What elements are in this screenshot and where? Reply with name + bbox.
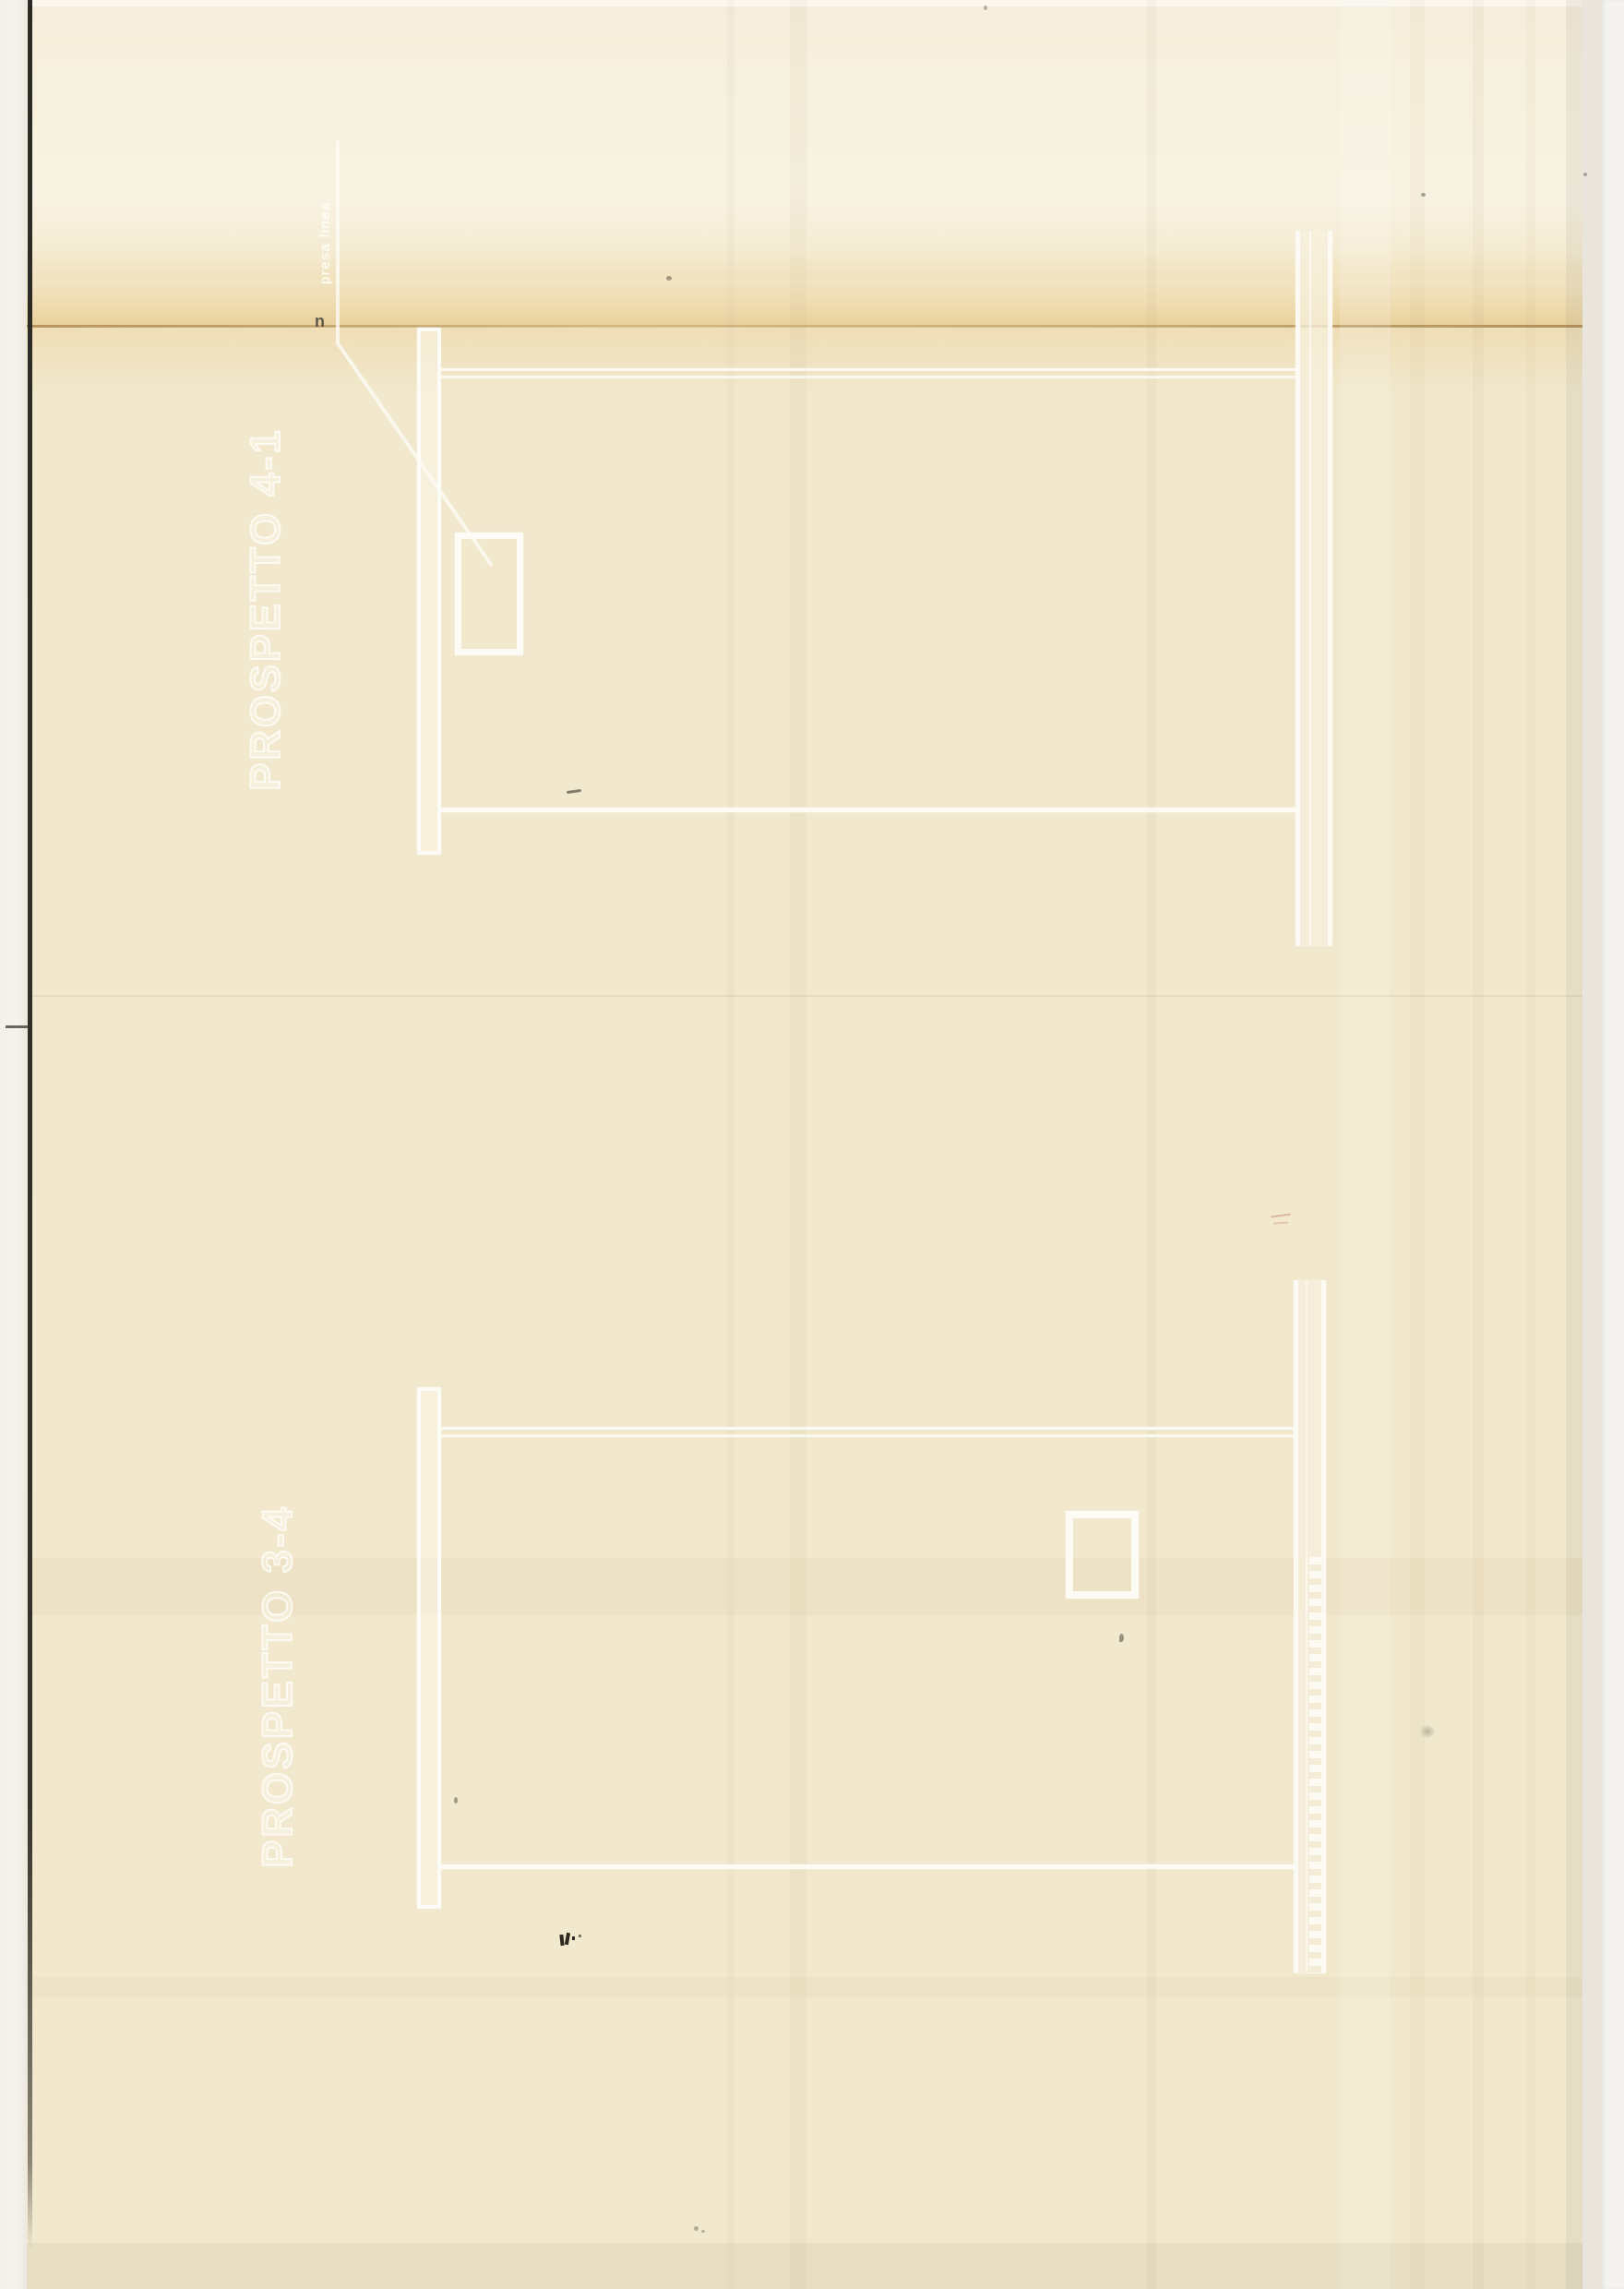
- paper-speck: [666, 276, 672, 281]
- left-pillar: [417, 1387, 441, 1909]
- right-pillar: [1296, 231, 1332, 946]
- annotation-n-mark: n: [315, 312, 325, 331]
- vertical-crease: [1410, 0, 1425, 2289]
- ink-dot: [579, 1935, 581, 1937]
- blueprint-scan: PROSPETTO 4-1 presa linea n PROSPETTO 3-…: [0, 0, 1624, 2289]
- paper-speck: [454, 1797, 458, 1804]
- right-edge-white-strip: [1602, 0, 1624, 2289]
- pillar-inner-line: [1309, 231, 1311, 946]
- annotation-presa-linea: presa linea: [316, 150, 335, 335]
- right-pillar: [1294, 1280, 1326, 1973]
- red-pencil-dash: [1273, 1221, 1288, 1224]
- vertical-crease: [790, 0, 806, 2289]
- paper-speck: [694, 2226, 699, 2231]
- paper-speck: [701, 2230, 705, 2233]
- right-edge-gray-band: [1582, 0, 1602, 2289]
- vertical-crease: [727, 0, 734, 2289]
- drawing-title-3-4: PROSPETTO 3-4: [255, 1483, 301, 1889]
- vertical-crease: [1147, 0, 1156, 2289]
- ink-blot: [565, 1933, 570, 1945]
- vertical-crease: [1526, 0, 1535, 2289]
- socket-box: [455, 533, 523, 655]
- paper-speck: [1119, 1634, 1124, 1642]
- wall-top-line: [441, 368, 1297, 378]
- wall-bottom-line: [441, 808, 1297, 812]
- paper-speck: [1583, 173, 1587, 176]
- left-pillar: [417, 328, 441, 855]
- pillar-inner-line: [1306, 1280, 1308, 1973]
- vertical-crease: [1473, 0, 1484, 2289]
- wall-bottom-line: [441, 1864, 1296, 1869]
- ink-dot: [572, 1936, 575, 1940]
- scan-left-margin: [0, 0, 27, 2289]
- wall-top-line: [441, 1427, 1296, 1437]
- window-box: [1066, 1511, 1139, 1599]
- paper-speck: [984, 6, 987, 10]
- pencil-smudge: [1419, 1724, 1436, 1739]
- light-vertical-band: [1340, 0, 1391, 2289]
- red-pencil-dash: [1271, 1213, 1291, 1217]
- scan-edge-black-line: [28, 0, 32, 2250]
- edge-tick-mark: [6, 1025, 30, 1028]
- pencil-dash: [567, 789, 581, 794]
- paper-speck: [1421, 193, 1426, 197]
- pillar-hatch-scale: [1309, 1557, 1321, 1973]
- right-edge-shadow: [1566, 0, 1582, 2289]
- drawing-title-4-1: PROSPETTO 4-1: [243, 406, 289, 812]
